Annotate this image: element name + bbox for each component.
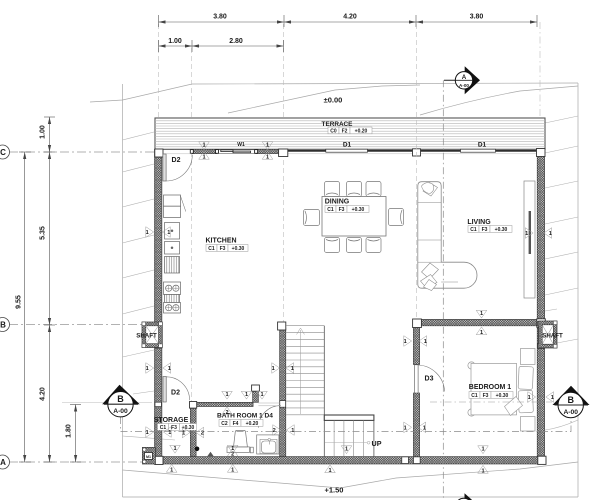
svg-text:1.80: 1.80 [66, 424, 73, 438]
svg-text:A-00: A-00 [459, 83, 469, 88]
svg-text:C0: C0 [330, 128, 337, 134]
svg-text:1: 1 [146, 366, 149, 372]
svg-text:C1: C1 [208, 246, 215, 252]
svg-text:1: 1 [272, 366, 275, 372]
svg-text:+0.30: +0.30 [495, 227, 508, 233]
svg-text:D1: D1 [478, 142, 487, 149]
svg-text:D2: D2 [171, 390, 180, 397]
svg-text:F2: F2 [342, 128, 348, 134]
svg-text:+1.50: +1.50 [325, 486, 344, 495]
svg-text:1: 1 [245, 392, 248, 398]
svg-text:C: C [0, 148, 6, 157]
svg-text:D1: D1 [343, 142, 352, 149]
svg-text:1: 1 [291, 428, 294, 434]
svg-text:A-00: A-00 [563, 409, 578, 416]
svg-text:1: 1 [146, 430, 149, 436]
svg-text:1: 1 [424, 339, 427, 345]
svg-text:1: 1 [266, 143, 269, 149]
svg-text:+0.30: +0.30 [352, 207, 365, 213]
svg-text:D2: D2 [172, 157, 181, 164]
svg-text:1: 1 [528, 395, 531, 401]
svg-text:1: 1 [146, 230, 149, 236]
svg-text:2: 2 [201, 431, 204, 437]
svg-text:C1: C1 [470, 227, 477, 233]
svg-text:1: 1 [328, 468, 331, 474]
svg-text:C2: C2 [221, 421, 228, 427]
svg-text:1: 1 [291, 366, 294, 372]
svg-text:1: 1 [480, 330, 483, 336]
svg-text:D3: D3 [425, 376, 434, 383]
svg-text:A: A [0, 458, 6, 467]
svg-text:1: 1 [168, 430, 171, 436]
svg-text:1: 1 [551, 395, 554, 401]
svg-text:1: 1 [549, 231, 552, 237]
svg-text:1: 1 [480, 311, 483, 317]
svg-text:±0.00: ±0.00 [324, 96, 343, 105]
svg-text:1: 1 [231, 446, 234, 452]
svg-text:1: 1 [266, 154, 269, 160]
svg-text:+0.30: +0.30 [232, 246, 245, 252]
svg-text:F3: F3 [482, 227, 488, 233]
svg-text:W1: W1 [237, 142, 245, 148]
svg-text:+0.20: +0.20 [355, 128, 368, 134]
svg-text:+0.20: +0.20 [246, 421, 259, 427]
svg-text:F3: F3 [339, 207, 345, 213]
svg-text:1: 1 [170, 467, 173, 473]
svg-text:1: 1 [202, 154, 205, 160]
svg-text:M1: M1 [146, 455, 151, 459]
svg-text:1: 1 [167, 230, 170, 236]
svg-text:1: 1 [202, 143, 205, 149]
svg-text:F3: F3 [220, 246, 226, 252]
svg-text:C1: C1 [160, 425, 167, 431]
svg-text:DINING: DINING [325, 199, 350, 206]
svg-text:1: 1 [168, 366, 171, 372]
svg-text:A: A [462, 74, 467, 81]
svg-text:F3: F3 [483, 393, 489, 399]
svg-text:1: 1 [260, 392, 263, 398]
svg-text:9.55: 9.55 [16, 295, 23, 309]
svg-text:SHAFT: SHAFT [542, 333, 563, 340]
svg-text:3.80: 3.80 [213, 14, 227, 21]
svg-text:1.00: 1.00 [40, 125, 47, 139]
svg-text:BEDROOM 1: BEDROOM 1 [469, 384, 512, 391]
svg-text:+0.30: +0.30 [496, 393, 509, 399]
svg-text:1: 1 [173, 446, 176, 452]
svg-text:UP: UP [372, 439, 382, 448]
svg-text:2: 2 [231, 451, 234, 457]
svg-text:B: B [0, 321, 6, 330]
svg-text:F3: F3 [171, 425, 177, 431]
svg-text:KITCHEN: KITCHEN [205, 238, 236, 245]
svg-text:C1: C1 [471, 393, 478, 399]
svg-text:1: 1 [231, 467, 234, 473]
svg-text:1: 1 [404, 339, 407, 345]
svg-text:LIVING: LIVING [467, 219, 491, 226]
svg-text:1: 1 [525, 231, 528, 237]
svg-text:4.20: 4.20 [343, 14, 357, 21]
svg-text:F4: F4 [233, 421, 239, 427]
svg-text:SHAFT: SHAFT [136, 333, 157, 340]
svg-text:1: 1 [404, 425, 407, 431]
svg-text:C1: C1 [327, 207, 334, 213]
svg-text:1: 1 [225, 392, 228, 398]
svg-text:5.35: 5.35 [40, 226, 47, 240]
svg-text:B: B [117, 394, 124, 404]
svg-text:2: 2 [225, 410, 228, 416]
svg-text:2.80: 2.80 [229, 38, 243, 45]
svg-text:3.80: 3.80 [470, 14, 484, 21]
svg-text:A-00: A-00 [113, 408, 128, 415]
svg-text:1: 1 [345, 447, 348, 453]
svg-text:1: 1 [481, 468, 484, 474]
svg-text:STORAGE: STORAGE [154, 417, 189, 424]
svg-text:B: B [567, 395, 574, 405]
svg-text:1: 1 [182, 431, 185, 437]
svg-text:2: 2 [273, 428, 276, 434]
svg-text:1: 1 [423, 425, 426, 431]
svg-text:1: 1 [481, 447, 484, 453]
svg-text:1.00: 1.00 [168, 38, 182, 45]
svg-text:4.20: 4.20 [40, 387, 47, 401]
